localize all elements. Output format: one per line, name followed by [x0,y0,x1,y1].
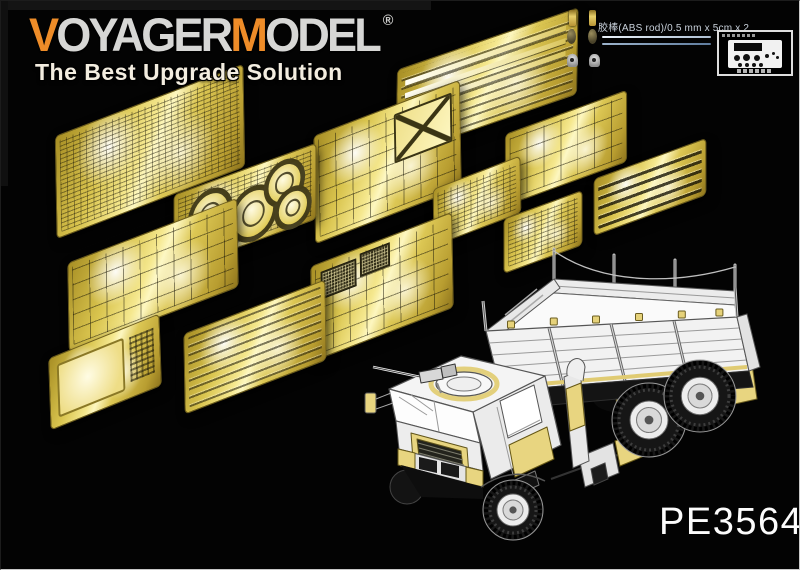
resin-oval-part [588,29,597,44]
metal-nozzle-part [567,54,578,67]
brand-tagline: The Best Upgrade Solution [35,59,409,86]
truck-illustration [361,229,800,544]
metal-nozzle-part [589,54,600,67]
product-photo: VOYAGERMODEL® The Best Upgrade Solution … [0,0,800,570]
abs-rod [602,43,711,45]
product-code: PE35648 [659,501,800,544]
blank-plate-part [57,338,126,418]
resin-oval-part [567,29,576,44]
brass-rod-part [589,10,596,26]
panel-screen [734,43,762,51]
x-brace-part [394,92,453,163]
brand-logo-text: VOYAGERMODEL® [29,11,393,58]
brand-logo: VOYAGERMODEL® The Best Upgrade Solution [29,11,409,86]
abs-rod [602,36,711,38]
photo-edge-left [1,1,8,186]
instrument-film-box [717,30,793,76]
registered-mark: ® [383,12,394,29]
mesh-part [321,258,357,299]
film-box-bottom-text [737,69,773,73]
instrument-panel-film [728,40,782,68]
small-parts-cluster [129,328,155,382]
brass-rod-part [569,10,576,26]
film-box-top-text [722,34,756,37]
